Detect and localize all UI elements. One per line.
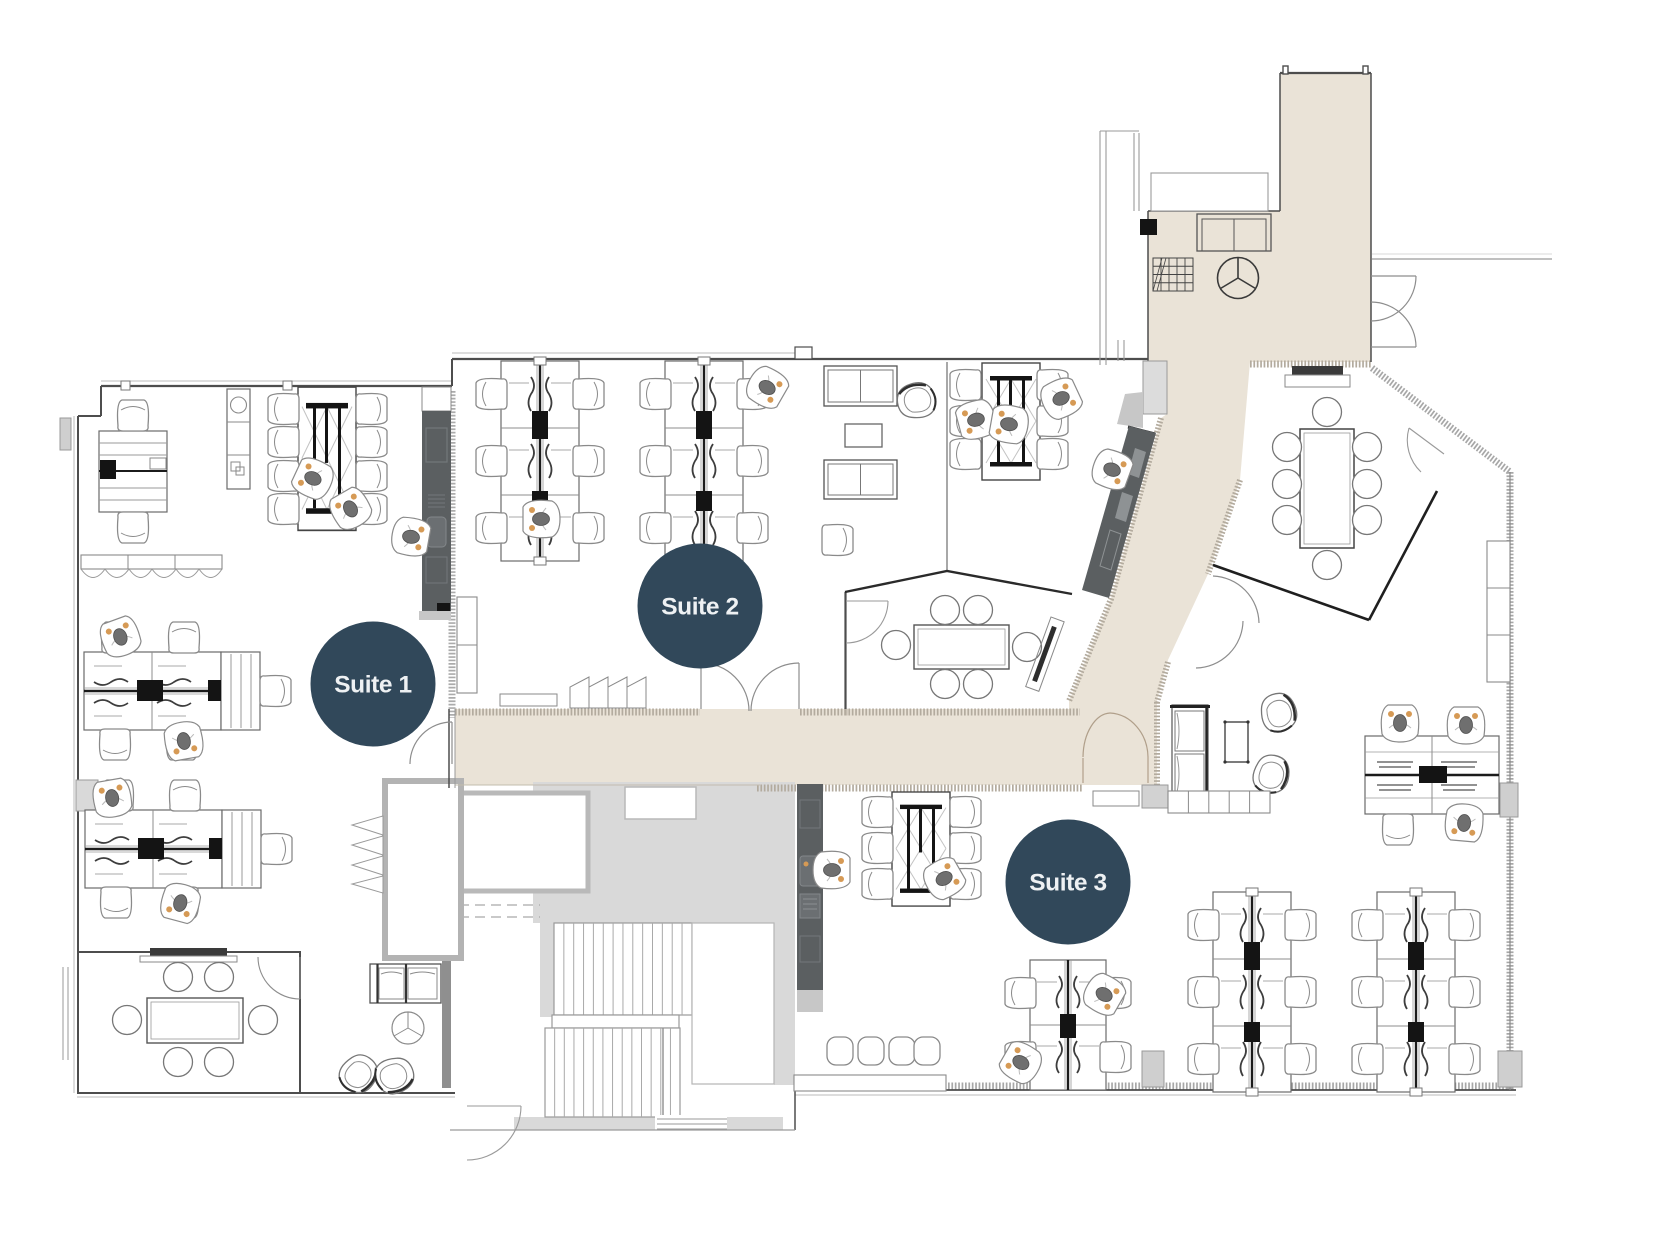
- svg-text:Suite 1: Suite 1: [334, 672, 412, 699]
- svg-text:Suite 2: Suite 2: [661, 594, 739, 621]
- svg-text:Suite 3: Suite 3: [1029, 870, 1107, 897]
